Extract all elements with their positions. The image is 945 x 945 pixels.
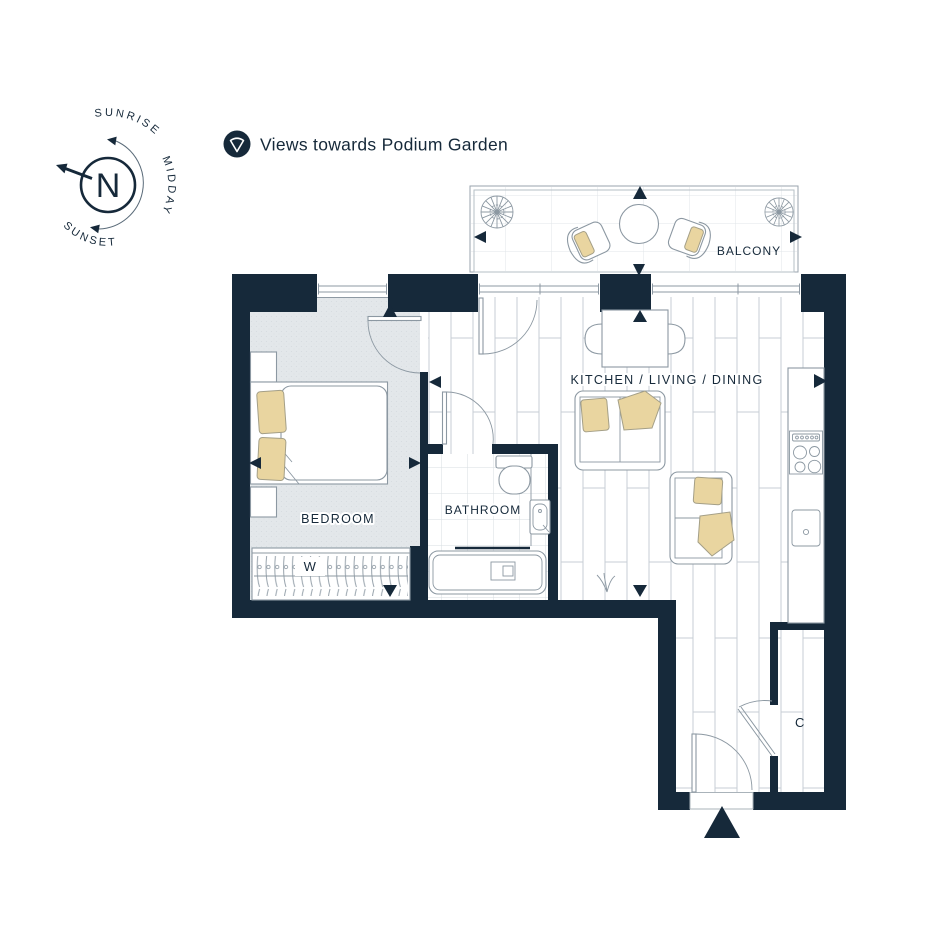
sofa-cushion bbox=[581, 398, 610, 432]
wardrobe: W bbox=[252, 548, 410, 600]
basin bbox=[530, 500, 550, 534]
bathroom-label: BATHROOM bbox=[445, 503, 521, 517]
compass-north-label: N bbox=[96, 167, 121, 205]
bed bbox=[251, 382, 388, 484]
bedroom-window bbox=[317, 284, 388, 298]
legend: Views towards Podium Garden bbox=[224, 131, 509, 158]
pillow bbox=[257, 390, 287, 434]
sunrise-arrowhead-icon bbox=[107, 137, 117, 146]
bathtub bbox=[429, 551, 546, 594]
compass: N SUNRISE MIDDAY SUNSET bbox=[56, 107, 178, 249]
view-cone-icon bbox=[224, 131, 251, 158]
compass-midday-label: MIDDAY bbox=[158, 155, 177, 218]
nightstand bbox=[251, 352, 277, 382]
pillow bbox=[257, 437, 286, 480]
sunset-arrowhead-icon bbox=[90, 225, 100, 234]
floorplan-svg: N SUNRISE MIDDAY SUNSET Views towards Po… bbox=[0, 0, 945, 945]
kitchen-run bbox=[788, 368, 824, 623]
legend-label: Views towards Podium Garden bbox=[260, 135, 508, 155]
plant-icon bbox=[765, 198, 793, 226]
nightstand bbox=[251, 487, 277, 517]
compass-sunrise-label: SUNRISE bbox=[94, 107, 163, 138]
plant-icon bbox=[481, 196, 513, 228]
living-room-window bbox=[652, 284, 800, 295]
sofa bbox=[575, 391, 665, 470]
cupboard-label: C bbox=[795, 715, 805, 730]
kitchen-living-dining-label: KITCHEN / LIVING / DINING bbox=[571, 373, 764, 387]
north-arrow-icon bbox=[56, 164, 92, 179]
loveseat bbox=[670, 472, 734, 564]
kitchen-counter bbox=[788, 368, 824, 623]
toilet bbox=[496, 456, 532, 494]
balcony-door-window bbox=[479, 284, 599, 295]
dining-table bbox=[602, 310, 668, 367]
compass-sunset-label: SUNSET bbox=[61, 220, 118, 249]
bedroom-label: BEDROOM bbox=[301, 512, 375, 526]
balcony-table bbox=[620, 205, 659, 244]
balcony-label: BALCONY bbox=[717, 244, 781, 258]
entrance-arrow-icon bbox=[704, 806, 740, 838]
bedroom: W BEDROOM bbox=[251, 352, 411, 600]
sofa-cushion bbox=[693, 477, 723, 505]
wardrobe-label: W bbox=[304, 559, 317, 574]
